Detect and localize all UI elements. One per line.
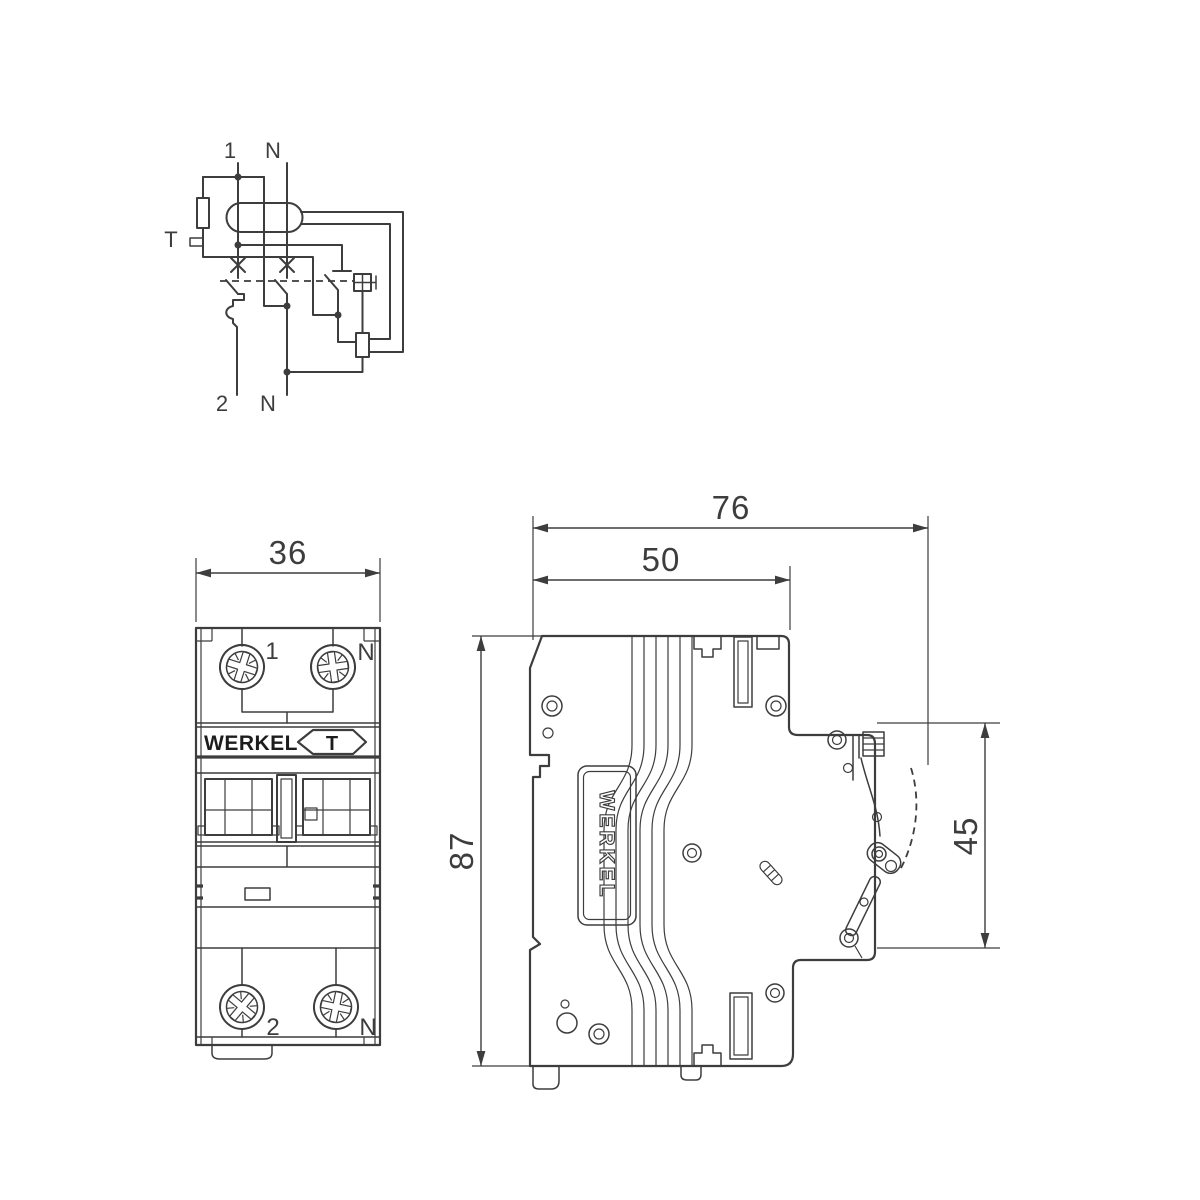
vent-slot-bottom [730,993,752,1059]
terminal-screw-1 [214,639,269,694]
junction-dot [235,174,242,181]
front-bottom-corner-details [212,1037,364,1045]
schematic-terminal-n-bottom-label: N [260,391,276,416]
wire-secondary-outer [301,212,403,352]
rating-window [245,888,270,900]
schematic-test-label: T [164,227,177,252]
schematic-terminal-n-top-label: N [265,138,281,163]
terminal-screw-n-top [308,642,358,692]
toggle-foot [370,826,377,835]
wire-module-bottom [287,357,363,372]
front-test-button-label: T [326,733,338,755]
front-edge-inner-lines [201,628,375,1045]
toggle-foot [296,826,303,835]
test-button-icon [190,238,203,246]
wire-test-through-toroid [264,177,287,306]
lever-pivot-inner [876,851,883,858]
dim-36-label: 36 [269,534,308,571]
toggle-right-detail [303,779,370,835]
dim-45-label: 45 [947,817,984,856]
vent-slot-top [734,637,752,707]
terminal-screw-2 [211,976,273,1038]
junction-dot [335,312,342,319]
terminal-connector-lines [242,689,333,723]
toggle-interlock-inner [281,779,292,838]
band-top-divider [196,723,380,727]
switch-blade-pole1 [226,280,238,294]
front-terminal-n-top-label: N [357,639,374,666]
lever-housing-lines [853,735,859,780]
side-view: 76 50 87 45 [443,489,1000,1089]
junction-dot [284,369,291,376]
schematic-terminal-2-label: 2 [216,391,228,416]
mount-tab-top [694,636,721,657]
lever-rivet [828,731,846,749]
top-corner-notch [757,636,779,649]
test-resistor-icon [197,198,209,228]
din-clip-tab [212,1045,272,1059]
side-brand-label: WERKEL [595,791,618,900]
pin-hole [561,1000,569,1008]
thermal-release-pole1 [226,294,244,395]
pin-hole [543,728,553,738]
front-terminal-1-label: 1 [265,638,278,665]
mid-divider-lines [196,842,380,867]
lever-rivet-inner [833,736,842,745]
din-foot-right [681,1066,701,1080]
mount-tab-bottom [694,1045,721,1066]
toggle-handle-right [303,779,370,835]
lever-face-curve [861,758,880,836]
wire-module-left [338,315,356,342]
junction-dot [284,303,291,310]
pin-hole [844,764,853,773]
din-foot-left [533,1066,559,1089]
wiring-schematic: 1 N 2 N T [164,138,403,416]
lever-mechanism [828,731,916,958]
terminal-stems-top [242,628,333,646]
lever-swing-arc-dashed [900,768,916,870]
vent-slot-top-inner [738,641,748,703]
lever-tail-line [855,946,862,958]
junction-dot [235,242,242,249]
terminal-screw-n-bottom [310,981,362,1033]
front-body-outline [196,628,380,1045]
switch-blade-poleN [275,280,287,294]
schematic-terminal-1-label: 1 [224,138,236,163]
technical-drawing-page: 1 N 2 N T [0,0,1200,1200]
dim-87-label: 87 [443,832,480,871]
lever-rivet [840,929,858,947]
lever-arm-hole [860,898,868,906]
front-view: 36 1 N WERKEL T [196,534,380,1059]
spring-detail-icon [758,859,784,886]
trip-coil-cross [354,274,371,291]
lower-divider-lines [196,907,380,948]
dim-76-extension-lines [533,516,928,765]
toggle-handle-left [205,779,272,835]
drawing-svg: 1 N 2 N T [0,0,1200,1200]
dim-50-label: 50 [642,541,681,578]
toggle-interlock-bar [277,775,296,842]
lever-hole [886,861,897,872]
front-top-corner-details [196,628,380,641]
front-brand-label: WERKEL [204,732,298,755]
electronic-module-icon [356,333,369,357]
side-body-outline [530,636,875,1066]
toggle-handles [198,775,377,842]
toggle-left-detail [205,779,272,835]
edge-tick-marks [196,886,380,898]
dim-76-label: 76 [712,489,751,526]
vent-slot-bottom-inner [734,997,748,1055]
pin-hole-large [557,1013,577,1033]
